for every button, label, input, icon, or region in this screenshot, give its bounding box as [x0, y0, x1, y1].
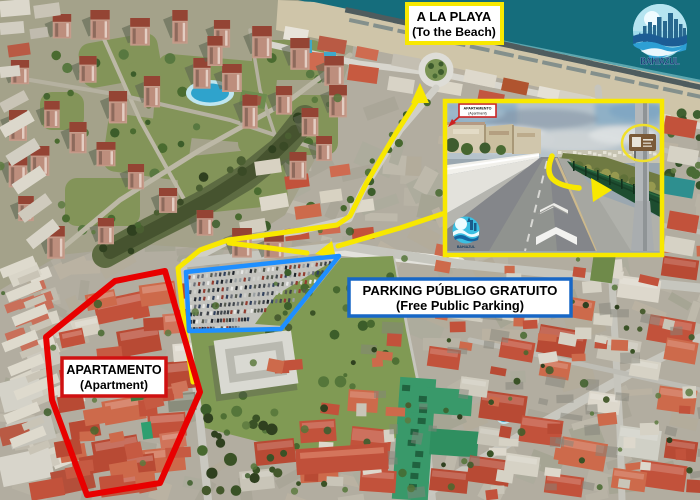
svg-text:A LA PLAYA: A LA PLAYA	[417, 9, 492, 24]
svg-text:PARKING PÚBLIGO GRATUITO: PARKING PÚBLIGO GRATUITO	[363, 283, 558, 298]
svg-text:(To the Beach): (To the Beach)	[412, 25, 496, 39]
svg-text:BAHIAZUL: BAHIAZUL	[457, 245, 476, 249]
svg-text:(Free Public Parking): (Free Public Parking)	[396, 298, 524, 313]
svg-text:TORREMOLINOS: TORREMOLINOS	[643, 66, 678, 70]
svg-text:APARTAMENTO: APARTAMENTO	[66, 363, 161, 377]
svg-text:APARTAMENTO: APARTAMENTO	[463, 107, 491, 111]
svg-text:(Apartment): (Apartment)	[468, 112, 486, 116]
svg-text:(Apartment): (Apartment)	[80, 378, 148, 392]
